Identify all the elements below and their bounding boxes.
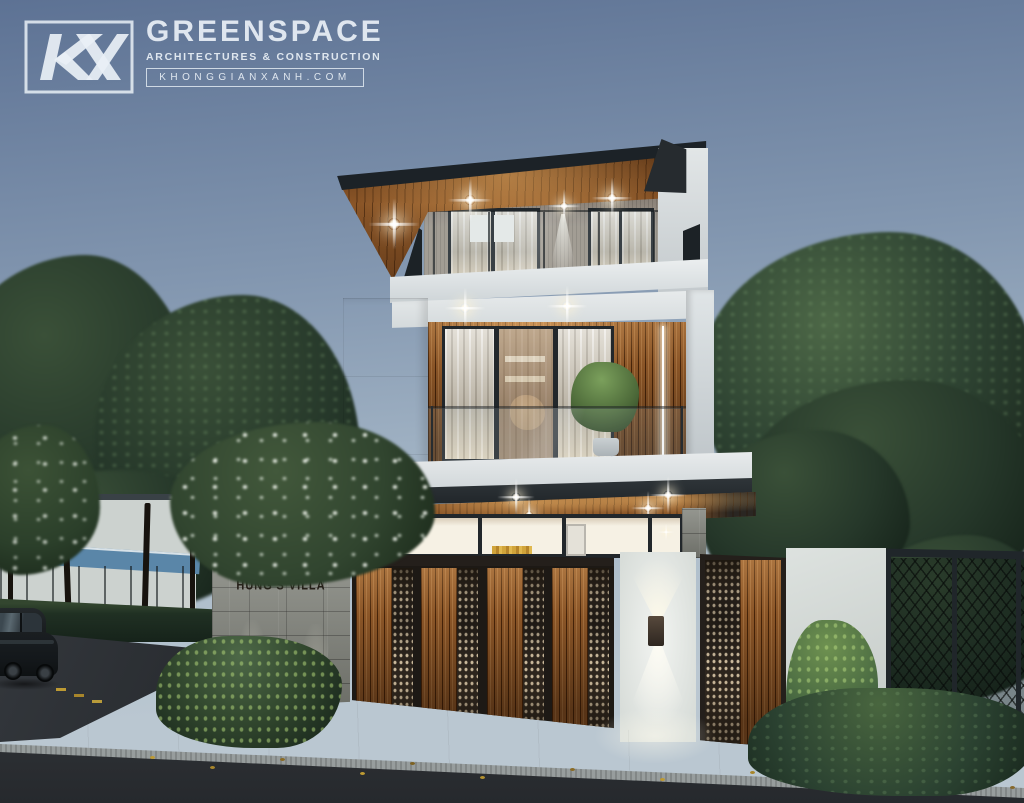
brand-text-block: GREENSPACE ARCHITECTURES & CONSTRUCTION … <box>146 16 376 87</box>
brand-name: GREENSPACE <box>146 16 376 48</box>
downlight-star <box>512 493 521 502</box>
brand-tagline: ARCHITECTURES & CONSTRUCTION <box>146 51 376 63</box>
downlight-star <box>607 193 617 203</box>
floor3-balustrade-posts <box>433 212 435 280</box>
downlight-star <box>465 195 475 205</box>
gate-wood-panel <box>552 568 588 730</box>
car-wheel-rear <box>4 662 22 680</box>
downlight-star <box>664 491 673 500</box>
wall-sconce-fixture <box>648 616 664 646</box>
shrub-row-right <box>748 688 1024 796</box>
downlight-star <box>562 301 572 311</box>
downlight-star <box>560 202 568 210</box>
car-wheel-front <box>36 664 54 682</box>
gate-perforated-panel <box>457 568 478 730</box>
car-shadow <box>0 678 60 690</box>
downlight-star <box>644 504 652 512</box>
brand-logo-monogram: KGX <box>24 18 136 96</box>
floor2-glass-balustrade <box>428 408 686 462</box>
floor2-white-column-right <box>686 290 714 480</box>
sidewalk-light-pool <box>590 706 720 766</box>
bamboo-leaf-texture <box>156 636 342 748</box>
glass-band-mullions <box>478 514 482 558</box>
interior-door <box>566 524 586 556</box>
car-body-highlight <box>0 640 54 644</box>
gate-wood-panel <box>421 568 457 730</box>
floor2-balustrade-posts <box>431 406 433 462</box>
main-gate <box>352 554 614 730</box>
parked-suv <box>0 600 80 700</box>
brand-website: KHONGGIANXANH.COM <box>146 68 364 87</box>
downlight-star <box>460 303 470 313</box>
car-window-pillar <box>20 613 22 633</box>
kgx-logo-icon <box>24 18 136 96</box>
interior-wall-light <box>664 530 668 534</box>
stone-pier-right <box>682 508 706 558</box>
interior-shelf-books <box>492 546 532 554</box>
bamboo-hedge-left <box>156 636 342 748</box>
villa-rendering-scene: HUNG'S VILLA KGX <box>0 0 1024 803</box>
downlight-star <box>388 218 400 230</box>
fallen-leaves <box>150 756 155 759</box>
gate-wood-panel <box>487 568 523 730</box>
shrub-leaf-texture <box>748 688 1024 796</box>
gate-perforated-panel <box>523 568 544 730</box>
